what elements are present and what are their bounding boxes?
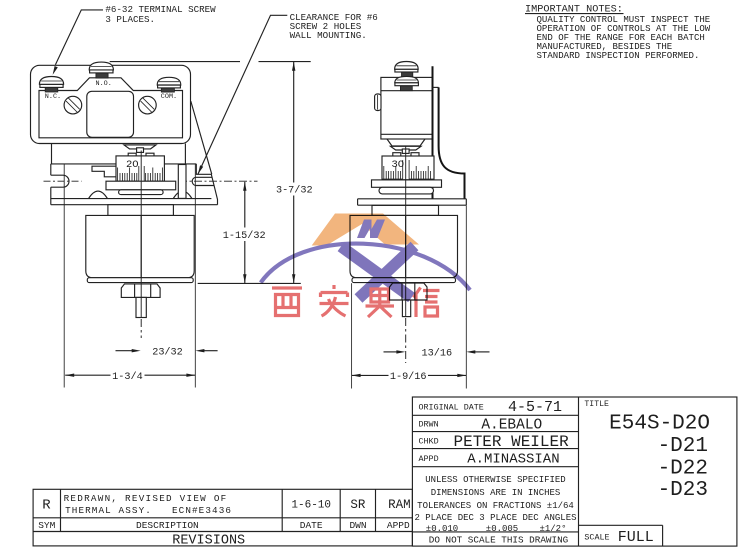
svg-text:TOLERANCES ON FRACTIONS ±1/64: TOLERANCES ON FRACTIONS ±1/64	[417, 501, 574, 511]
svg-text:APPD: APPD	[387, 520, 410, 531]
svg-text:1-9/16: 1-9/16	[390, 371, 427, 383]
svg-text:FULL: FULL	[618, 529, 654, 546]
svg-text:PETER WEILER: PETER WEILER	[453, 433, 569, 451]
svg-text:N.C.: N.C.	[45, 93, 61, 101]
svg-text:SYM: SYM	[38, 520, 55, 531]
svg-text:-D23: -D23	[658, 479, 708, 502]
svg-text:CHKD: CHKD	[419, 437, 439, 447]
svg-text:COM.: COM.	[161, 93, 177, 101]
svg-text:SCALE: SCALE	[584, 533, 609, 543]
svg-text:13/16: 13/16	[422, 348, 453, 360]
svg-text:DATE: DATE	[300, 520, 323, 531]
svg-text:-D21: -D21	[658, 435, 708, 458]
svg-text:2O: 2O	[126, 159, 139, 171]
svg-text:±1/2°: ±1/2°	[539, 524, 566, 534]
svg-text:3-7/32: 3-7/32	[276, 184, 313, 196]
svg-text:DIMENSIONS ARE IN INCHES: DIMENSIONS ARE IN INCHES	[431, 488, 561, 498]
svg-text:DESCRIPTION: DESCRIPTION	[136, 520, 199, 531]
svg-text:E54S-D2O: E54S-D2O	[609, 412, 710, 435]
svg-text:STANDARD INSPECTION PERFORMED.: STANDARD INSPECTION PERFORMED.	[537, 50, 700, 61]
svg-text:R: R	[42, 497, 51, 513]
svg-text:DRWN: DRWN	[419, 420, 439, 430]
svg-text:UNLESS OTHERWISE SPECIFIED: UNLESS OTHERWISE SPECIFIED	[425, 475, 565, 485]
svg-text:A.MINASSIAN: A.MINASSIAN	[467, 452, 559, 468]
svg-text:-D22: -D22	[658, 457, 708, 480]
svg-text:±0.005: ±0.005	[486, 524, 518, 534]
svg-text:A.EBALO: A.EBALO	[481, 417, 542, 433]
svg-text:N.O.: N.O.	[96, 80, 112, 88]
svg-text:±0.010: ±0.010	[426, 524, 458, 534]
svg-text:1-15/32: 1-15/32	[223, 230, 266, 242]
svg-text:WALL MOUNTING.: WALL MOUNTING.	[290, 30, 367, 41]
svg-text:ORIGINAL DATE: ORIGINAL DATE	[419, 402, 484, 412]
svg-text:3 PLACES.: 3 PLACES.	[105, 14, 155, 25]
svg-text:REVISIONS: REVISIONS	[172, 533, 245, 548]
svg-text:THERMAL ASSY. ECN#E3436: THERMAL ASSY. ECN#E3436	[65, 505, 232, 516]
svg-text:DO NOT SCALE THIS DRAWING: DO NOT SCALE THIS DRAWING	[429, 534, 568, 545]
svg-text:3O: 3O	[392, 159, 405, 171]
svg-text:DWN: DWN	[349, 520, 366, 531]
svg-text:23/32: 23/32	[152, 346, 183, 358]
svg-text:REDRAWN, REVISED VIEW OF: REDRAWN, REVISED VIEW OF	[64, 493, 228, 504]
svg-text:TITLE: TITLE	[584, 400, 609, 409]
svg-text:2 PLACE DEC 3 PLACE DEC ANGLES: 2 PLACE DEC 3 PLACE DEC ANGLES	[414, 513, 576, 523]
svg-text:4-5-71: 4-5-71	[508, 399, 562, 416]
svg-text:APPD: APPD	[419, 454, 439, 464]
svg-text:1-3/4: 1-3/4	[112, 371, 143, 383]
svg-text:SR: SR	[350, 498, 366, 512]
svg-text:RAM: RAM	[388, 498, 411, 512]
svg-text:1-6-10: 1-6-10	[291, 499, 331, 511]
